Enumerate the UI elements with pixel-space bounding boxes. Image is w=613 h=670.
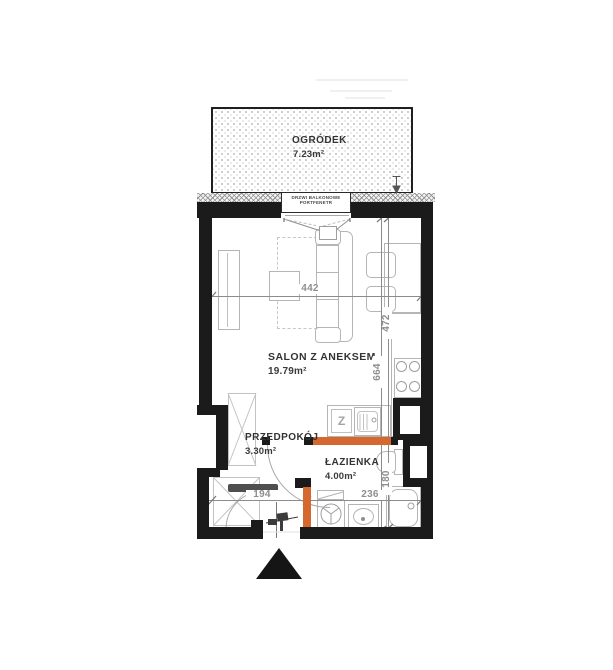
room-label-hall: PRZEDPOKÓJ — [245, 432, 318, 443]
room-area-salon: 19.79m² — [268, 366, 307, 377]
bathtub-drain — [408, 503, 414, 509]
plan-linework — [0, 0, 613, 670]
door-jamb — [391, 437, 398, 445]
room-area-hall: 3.30m² — [245, 446, 276, 457]
kitchen-faucet — [372, 418, 376, 422]
garden-marker — [393, 176, 401, 193]
balcony-door-note-line2: PORTFENETR — [283, 200, 349, 205]
washer-drum-icon — [321, 504, 341, 524]
room-label-salon: SALON Z ANEKSEM — [268, 351, 376, 363]
wall — [421, 202, 433, 539]
accent-wall — [313, 437, 391, 445]
shaft-niche — [400, 406, 420, 434]
dim-salon-length: 472 — [382, 307, 392, 339]
wall — [300, 527, 433, 539]
balcony-door-note: DRZWI BALKONOWE PORTFENETR — [283, 195, 349, 205]
wall — [199, 202, 212, 406]
room-area-bath: 4.00m² — [325, 471, 356, 482]
kitchen-sink-drainer — [360, 414, 367, 430]
wall — [216, 415, 228, 470]
room-area-garden: 7.23m² — [293, 149, 324, 160]
bath-sink-drain — [361, 517, 365, 521]
washer-shelf-line — [318, 492, 343, 499]
wall — [251, 520, 263, 528]
room-label-bath: ŁAZIENKA — [325, 457, 379, 468]
dim-salon-width: 442 — [294, 284, 326, 294]
dim-total-length: 664 — [373, 356, 383, 388]
accent-wall — [303, 487, 311, 527]
shaft-niche — [410, 446, 427, 478]
entrance-arrow-icon — [256, 548, 302, 579]
wall — [197, 405, 228, 415]
room-label-garden: OGRÓDEK — [292, 135, 347, 146]
balcony-door-swing — [284, 216, 350, 240]
door-handle-icon — [266, 512, 298, 531]
wall — [197, 527, 263, 539]
dim-bath-length: 180 — [382, 463, 392, 495]
floor-plan: Z — [0, 0, 613, 670]
dim-hall-width: 194 — [246, 490, 278, 500]
